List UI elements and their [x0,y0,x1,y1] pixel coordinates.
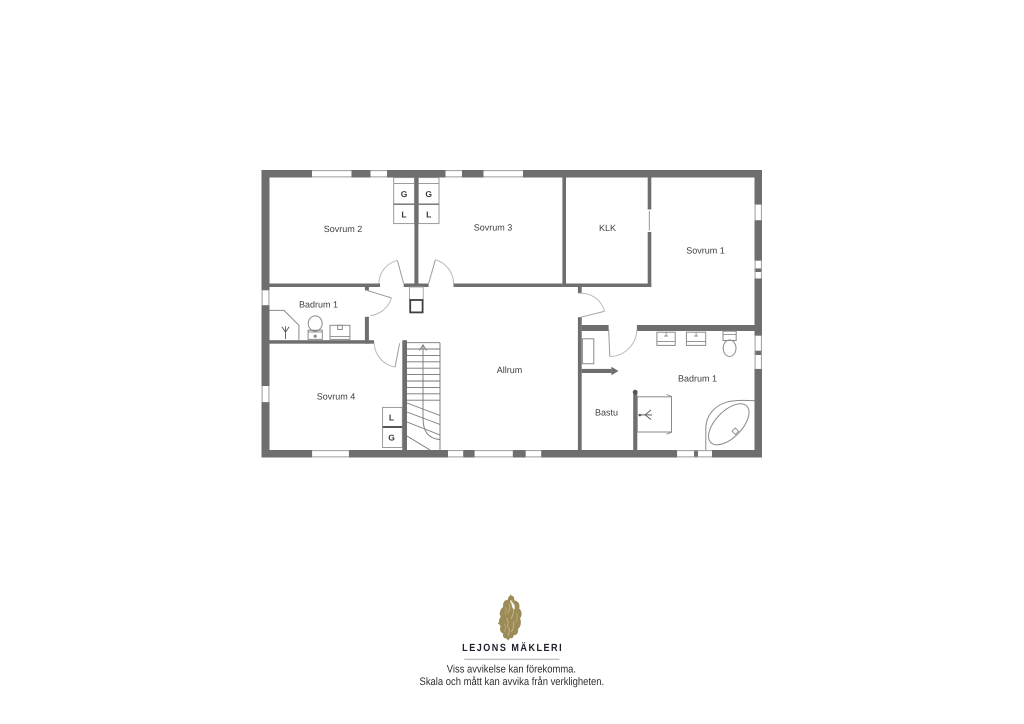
svg-text:Skala och mått kan avvika från: Skala och mått kan avvika från verklighe… [420,676,605,688]
svg-text:KLK: KLK [599,223,616,233]
svg-text:Allrum: Allrum [497,365,523,375]
svg-text:Sovrum 3: Sovrum 3 [474,223,513,233]
svg-text:Sovrum 2: Sovrum 2 [324,224,363,234]
svg-text:L: L [389,413,394,423]
svg-text:Badrum 1: Badrum 1 [299,299,338,309]
svg-text:G: G [388,433,395,443]
svg-text:G: G [425,189,432,199]
svg-text:LEJONS MÄKLERI: LEJONS MÄKLERI [462,642,563,654]
svg-text:Badrum 1: Badrum 1 [678,374,717,384]
svg-text:Sovrum 1: Sovrum 1 [686,245,725,255]
svg-text:L: L [401,209,406,219]
svg-text:G: G [401,189,408,199]
svg-text:L: L [426,209,431,219]
svg-text:Viss avvikelse kan förekomma.: Viss avvikelse kan förekomma. [447,664,576,675]
svg-text:Sovrum 4: Sovrum 4 [317,391,356,401]
svg-text:Bastu: Bastu [595,408,618,418]
